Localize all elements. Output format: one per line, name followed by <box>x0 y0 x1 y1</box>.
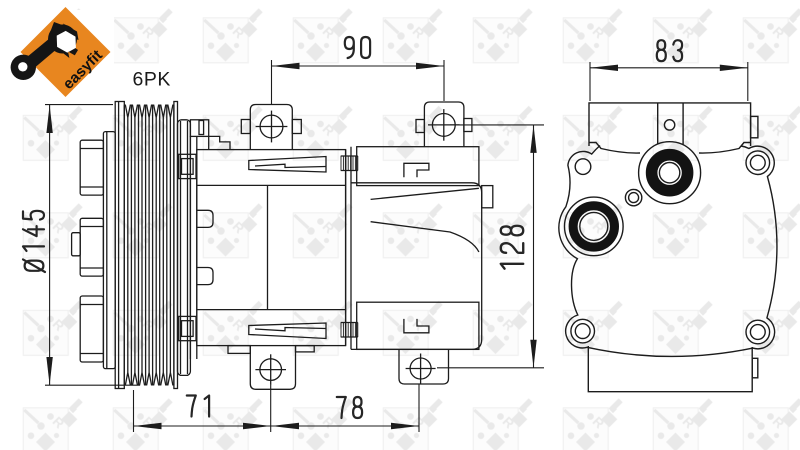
svg-text:6PK: 6PK <box>133 69 171 91</box>
